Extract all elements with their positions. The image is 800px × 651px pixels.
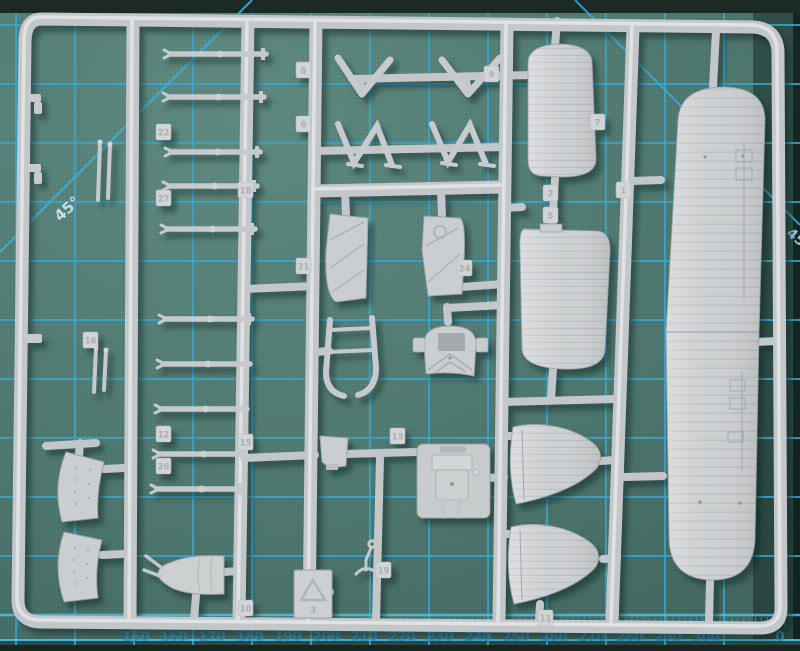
svg-text:15: 15	[240, 439, 252, 449]
mat-top-edge	[0, 0, 800, 13]
part-number-tag: 19	[376, 562, 391, 578]
svg-text:27: 27	[158, 195, 170, 205]
clip-3	[26, 334, 42, 343]
part-number-tag: 27	[156, 190, 171, 206]
part-number-tag: 10	[238, 600, 253, 616]
sprue-photo: 45° 45 150160170180190200210220230240250…	[0, 0, 800, 651]
svg-text:9: 9	[489, 71, 495, 81]
part-number-tag: 7	[590, 114, 605, 130]
scale-number: 220	[388, 630, 415, 645]
part-number-tag: 5	[543, 207, 558, 223]
svg-text:8: 8	[301, 67, 307, 77]
cowl-band-a-body	[58, 452, 104, 522]
material-mark: 3	[310, 606, 316, 616]
part-number-tag: 1	[616, 182, 631, 198]
radiator-hole	[448, 356, 451, 359]
svg-text:22: 22	[158, 129, 170, 139]
mat-bottom-edge	[0, 645, 800, 651]
fuselage-side-panel-a	[326, 214, 368, 302]
scale-number: 190	[274, 630, 301, 645]
svg-text:2: 2	[548, 190, 554, 200]
svg-text:19: 19	[378, 567, 390, 577]
scale-number: 170	[198, 630, 225, 645]
svg-text:10: 10	[240, 605, 252, 615]
clip-1b	[34, 102, 42, 114]
part-number-tag: 12	[156, 426, 171, 442]
part-number-tag: 24	[457, 260, 472, 276]
svg-text:5: 5	[548, 212, 554, 222]
svg-text:7: 7	[595, 119, 601, 129]
engine-block-assembly	[417, 444, 490, 518]
radiator-ear-right	[476, 338, 488, 352]
engine-magneto	[473, 469, 479, 475]
scale-number: 150	[122, 630, 149, 645]
float-b-tab	[540, 224, 562, 232]
part-number-tag: 21	[296, 258, 311, 274]
wing-sheen-top	[666, 87, 765, 332]
part-number-tag: 16	[83, 332, 98, 348]
panel-a-body	[326, 214, 368, 302]
svg-text:1: 1	[621, 187, 627, 197]
scale-number: 160	[160, 630, 187, 645]
svg-text:16: 16	[85, 337, 97, 347]
material-tag: 3	[294, 570, 332, 618]
float-half-b	[520, 224, 610, 369]
float-half-a	[528, 44, 596, 177]
engine-cylinder-head	[432, 455, 472, 470]
svg-text:18: 18	[240, 187, 252, 197]
upper-wing-panel-pair	[666, 87, 765, 580]
part-number-tag: 2	[543, 185, 558, 201]
svg-text:26: 26	[158, 463, 170, 473]
scale-number: 180	[236, 630, 263, 645]
part-number-tag: 18	[238, 182, 253, 198]
float-a-sheen	[528, 44, 596, 177]
part-number-tag: 8	[296, 62, 311, 78]
part-number-tag: 22	[156, 124, 171, 140]
small-box-notch	[326, 464, 338, 470]
wing-sheen-bottom	[666, 332, 759, 580]
float-b-sheen	[520, 229, 610, 369]
scale-number: 210	[350, 630, 377, 645]
radiator-ear-left	[413, 338, 425, 352]
svg-text:6: 6	[301, 121, 307, 131]
cowl-band-a	[58, 452, 104, 522]
clip-2	[28, 164, 41, 172]
part-number-tag: 15	[238, 434, 253, 450]
scale-number: 240	[464, 630, 491, 645]
engine-shaft-hole	[450, 482, 454, 486]
part-number-tag: 6	[296, 116, 311, 132]
svg-text:11: 11	[540, 615, 552, 625]
svg-text:21: 21	[298, 263, 310, 273]
sprue-photo-scene: 45° 45 150160170180190200210220230240250…	[0, 0, 800, 651]
scale-number: 0	[775, 630, 784, 645]
clip-2b	[34, 172, 42, 184]
radiator-opening	[438, 333, 465, 351]
part-number-tag: 11	[538, 610, 553, 626]
svg-text:13: 13	[392, 433, 404, 443]
part-number-tag: 13	[390, 428, 405, 444]
small-box-body	[320, 436, 348, 468]
mat-right-edge-dark	[793, 0, 800, 651]
scale-number: 200	[312, 630, 339, 645]
part-number-tag: 9	[484, 66, 499, 82]
svg-text:12: 12	[158, 431, 170, 441]
fuselage-side-panel-b	[422, 216, 465, 296]
svg-text:24: 24	[459, 265, 471, 275]
part-number-tag: 26	[156, 458, 171, 474]
scale-number: 230	[426, 630, 453, 645]
cowl-band-b-body	[58, 532, 102, 602]
engine-top-slot	[440, 446, 466, 453]
clip-1	[28, 94, 41, 102]
cowl-band-b	[58, 532, 102, 602]
